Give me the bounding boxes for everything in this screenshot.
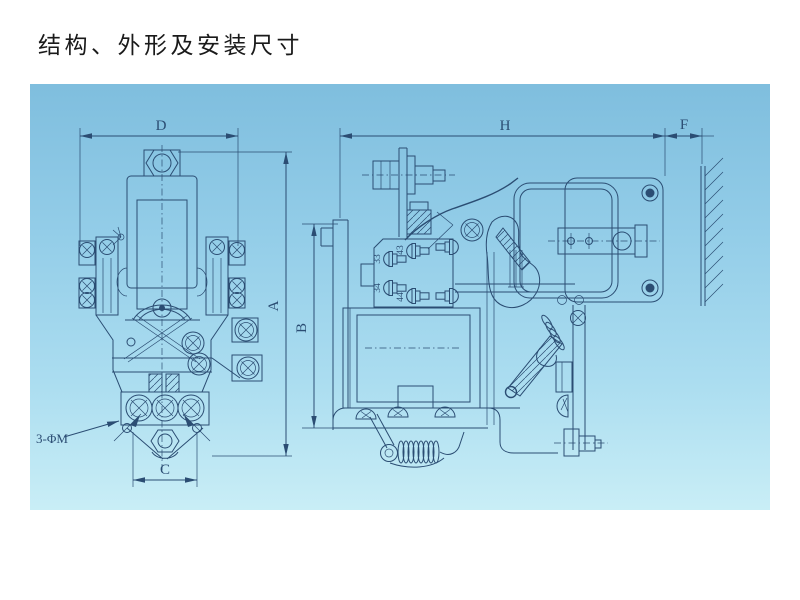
hole-note-label: 3-ΦM — [36, 431, 68, 446]
dim-label-H: H — [500, 118, 511, 134]
technical-drawing-figure: 结构、外形及安装尺寸 — [0, 0, 800, 600]
dim-label-F: F — [680, 117, 688, 133]
page-title: 结构、外形及安装尺寸 — [38, 33, 303, 58]
dim-label-C: C — [160, 462, 170, 478]
dim-label-B: B — [294, 323, 310, 333]
coil-spring — [398, 441, 439, 463]
terminal-label-43: 43 — [396, 245, 406, 255]
terminal-label-33: 33 — [373, 254, 383, 264]
dim-label-D: D — [156, 118, 167, 134]
slide-page: 结构、外形及安装尺寸 — [0, 0, 800, 600]
dim-label-A: A — [266, 300, 282, 311]
terminal-label-44: 44 — [396, 292, 406, 302]
